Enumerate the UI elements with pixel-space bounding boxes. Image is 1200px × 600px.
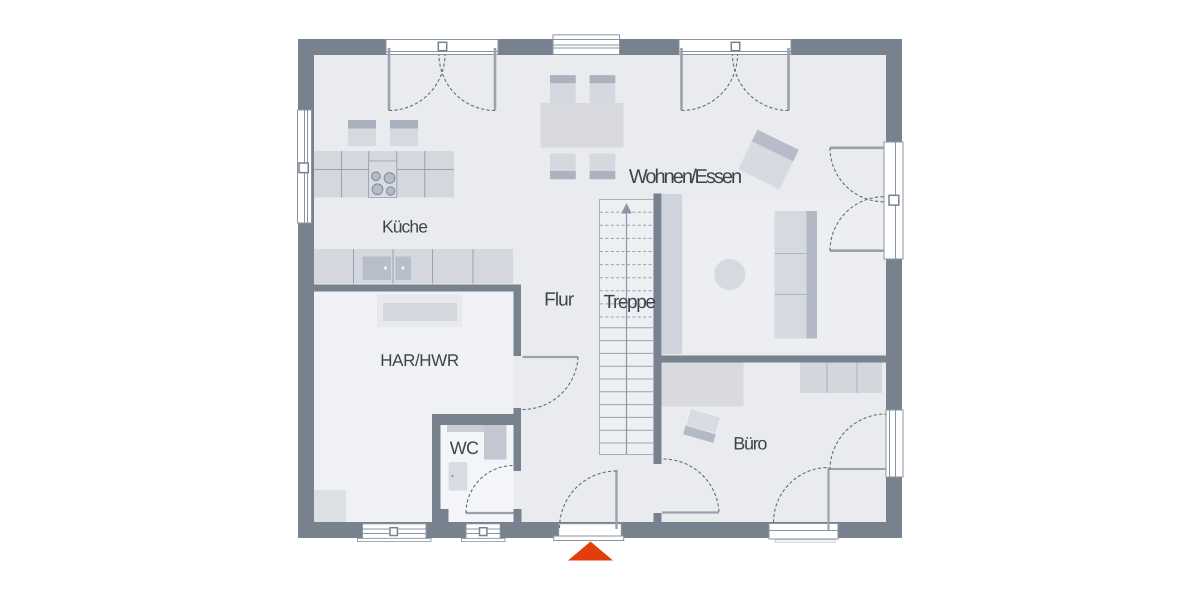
svg-text:Treppe: Treppe <box>603 292 655 313</box>
svg-text:Küche: Küche <box>382 217 427 237</box>
svg-text:WC: WC <box>450 438 479 458</box>
svg-text:HAR/HWR: HAR/HWR <box>380 351 459 370</box>
svg-text:Büro: Büro <box>733 433 767 453</box>
svg-text:Flur: Flur <box>544 290 575 311</box>
svg-text:Wohnen/Essen: Wohnen/Essen <box>629 166 741 188</box>
